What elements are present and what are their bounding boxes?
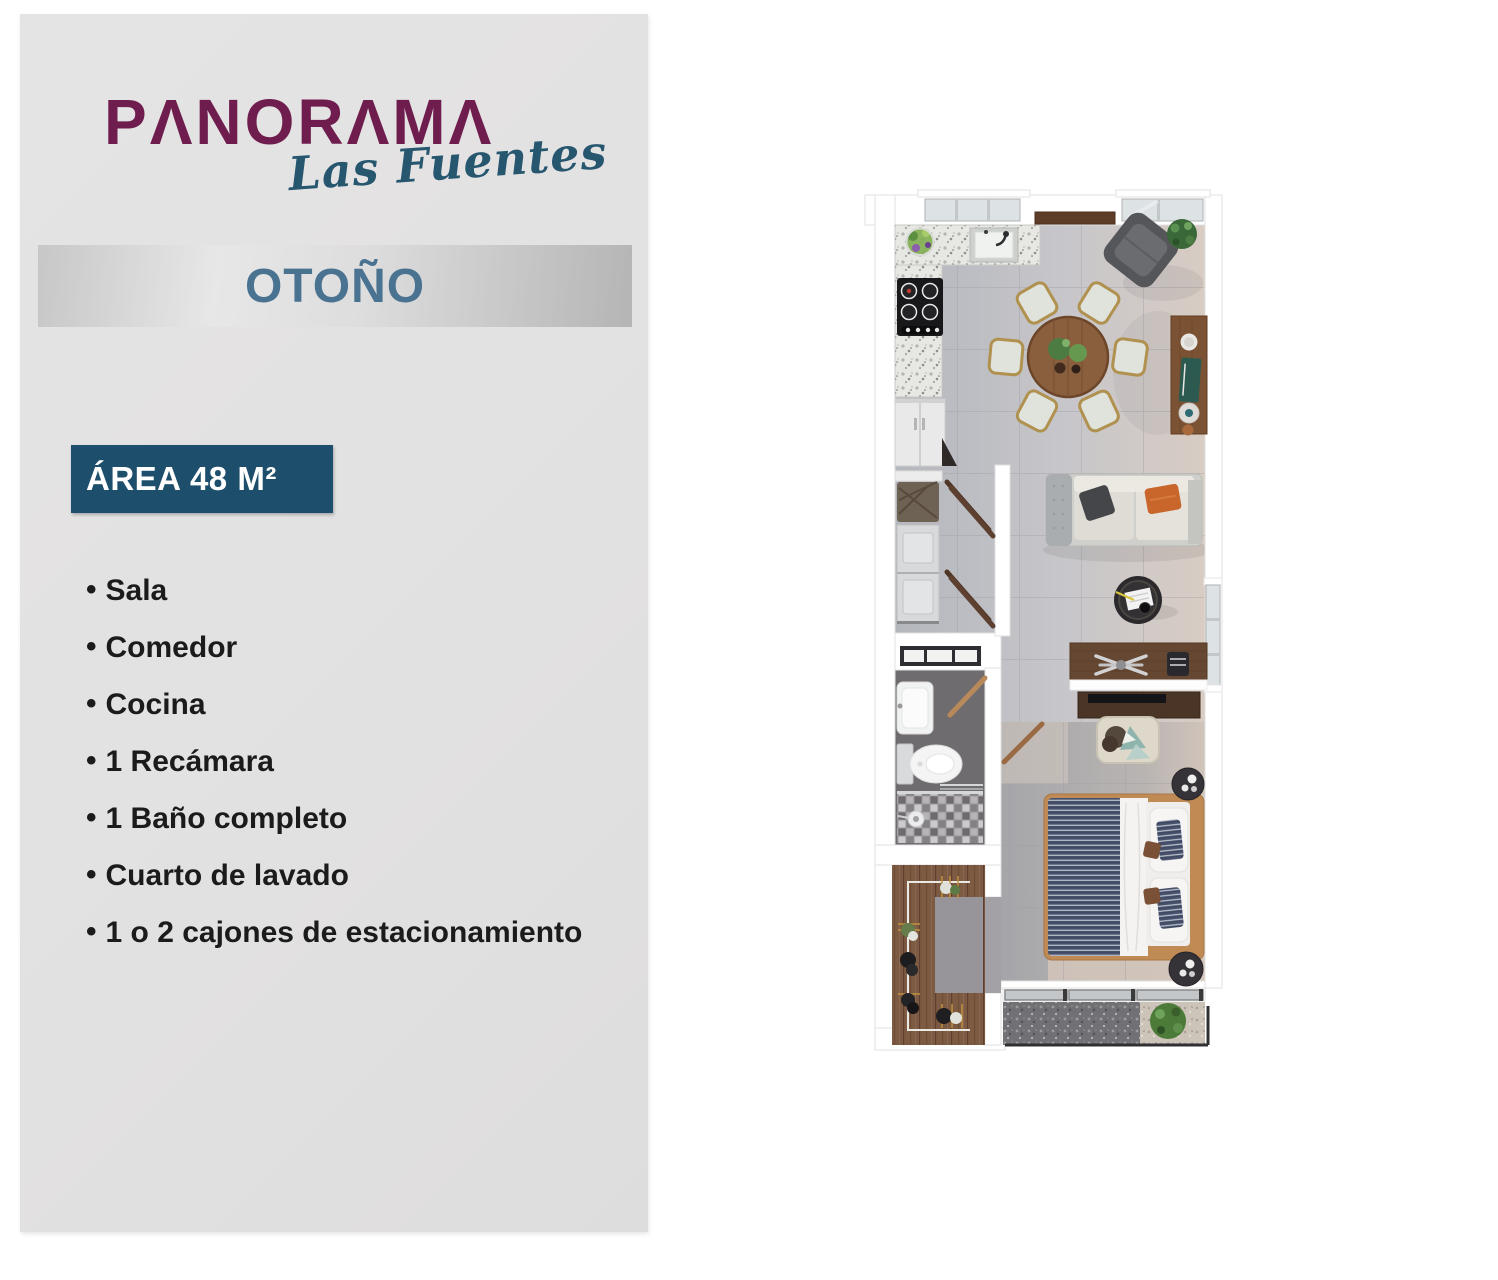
features-list: Sala Comedor Cocina 1 Recámara 1 Baño co…	[86, 574, 582, 973]
balcony-area	[1003, 988, 1208, 1045]
bathroom-sink	[897, 682, 933, 734]
unit-name: OTOÑO	[245, 259, 425, 314]
feature-item: 1 Baño completo	[86, 802, 582, 836]
info-panel: PΛNORΛMΛ Las Fuentes OTOÑO ÁREA 48 M² Sa…	[20, 14, 648, 1232]
entry-bench	[1035, 212, 1115, 224]
sideboard	[1171, 316, 1207, 436]
laundry-basket	[897, 482, 939, 522]
nightstand-top	[1172, 768, 1204, 800]
nightstand-bottom	[1169, 952, 1203, 986]
shaft-window	[900, 646, 981, 666]
area-label: ÁREA 48 M²	[71, 460, 277, 498]
feature-item: Comedor	[86, 631, 582, 665]
kitchen-sink	[970, 228, 1018, 262]
unit-banner: OTOÑO	[38, 245, 632, 327]
feature-item: Cuarto de lavado	[86, 859, 582, 893]
floor-plan	[858, 188, 1238, 1068]
feature-item: 1 o 2 cajones de estacionamiento	[86, 916, 582, 950]
feature-item: Cocina	[86, 688, 582, 722]
area-badge: ÁREA 48 M²	[71, 445, 333, 513]
dining-table	[1028, 317, 1108, 397]
sliding-door	[1003, 988, 1205, 1002]
corner-plant	[1167, 219, 1197, 249]
washer-dryer	[897, 525, 939, 624]
tv-console	[1078, 692, 1200, 718]
desk-canister	[1167, 652, 1189, 676]
counter-plant	[907, 228, 934, 256]
clothes-bench	[1097, 717, 1159, 763]
toilet	[897, 744, 962, 784]
balcony-plant	[1150, 1003, 1186, 1039]
cooktop	[897, 278, 943, 336]
flyer-page: PΛNORΛMΛ Las Fuentes OTOÑO ÁREA 48 M² Sa…	[0, 0, 1498, 1280]
feature-item: 1 Recámara	[86, 745, 582, 779]
bed	[1044, 794, 1204, 960]
feature-item: Sala	[86, 574, 582, 608]
sofa	[1046, 474, 1202, 546]
walkin-closet	[892, 865, 1001, 1045]
